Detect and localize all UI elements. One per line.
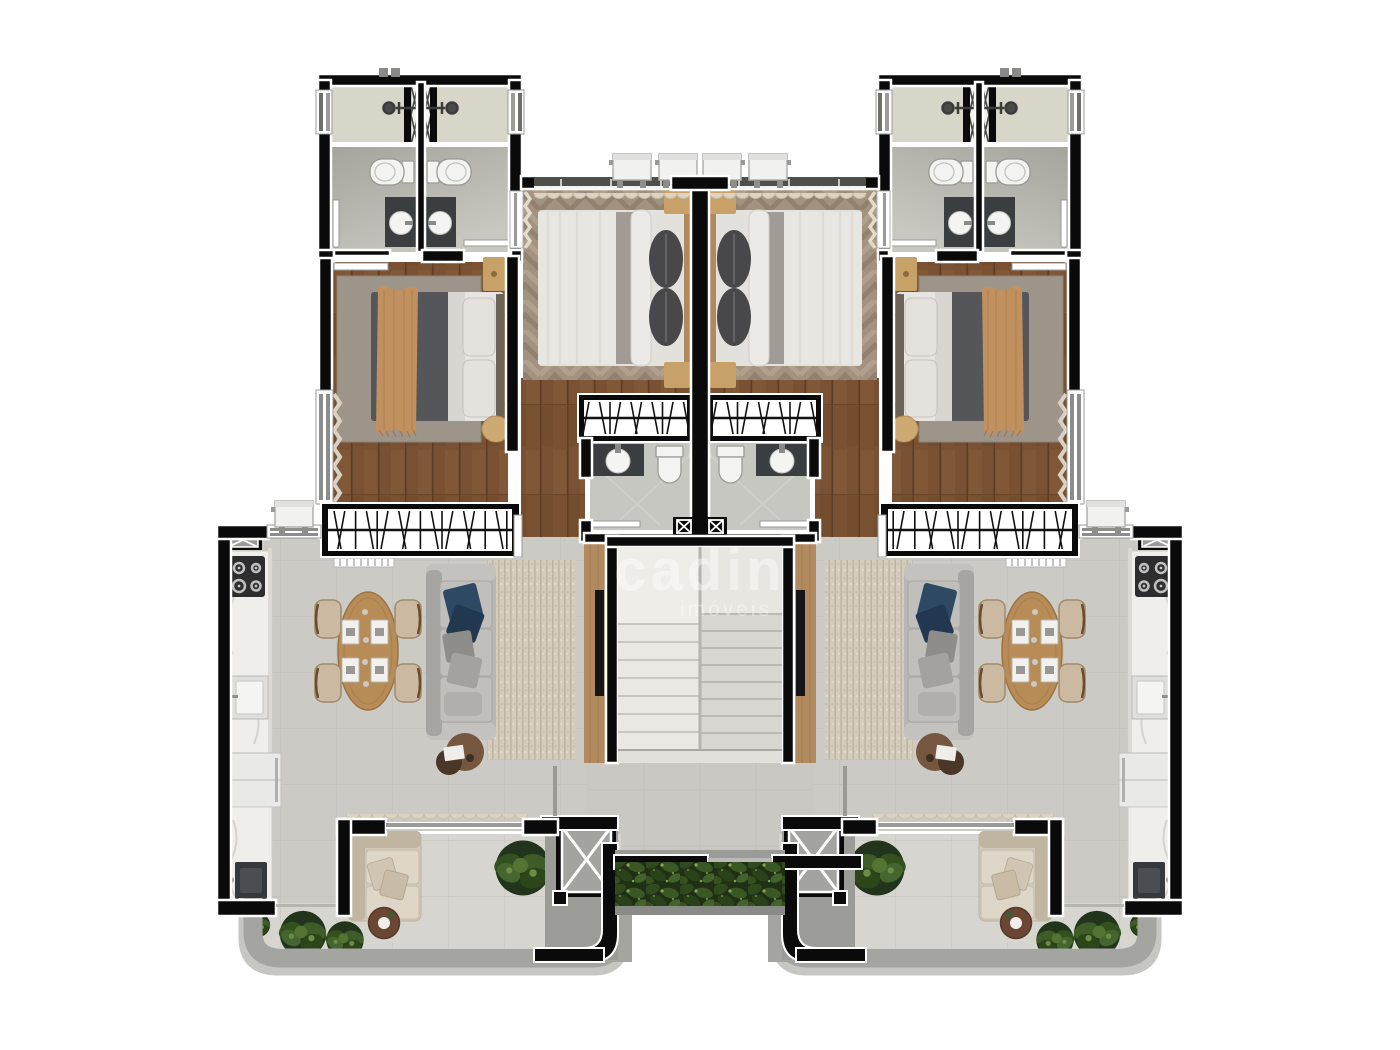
- svg-text:imóveis: imóveis: [680, 598, 772, 621]
- svg-text:cadin: cadin: [614, 538, 786, 603]
